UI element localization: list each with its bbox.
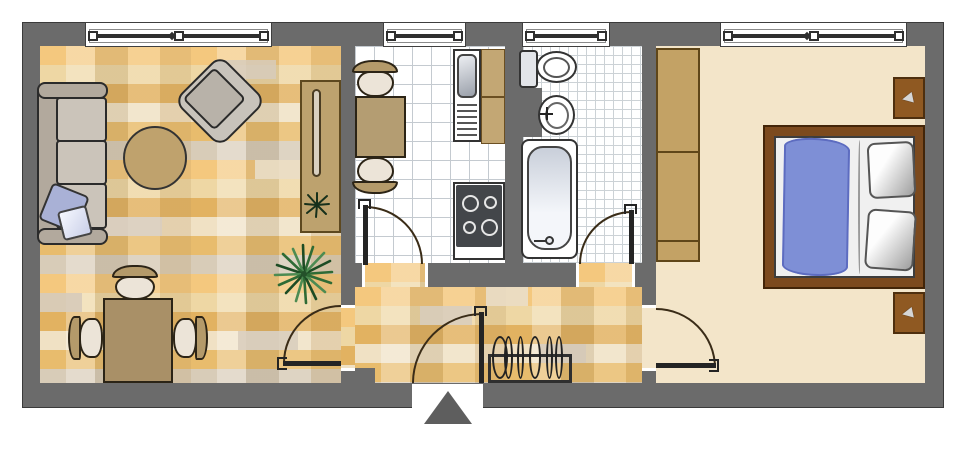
- window-end-post: [453, 31, 463, 41]
- window-end-post: [597, 31, 607, 41]
- window-end-post: [386, 31, 396, 41]
- kitchen-door-leaf: [363, 205, 368, 265]
- living-room-window: [85, 22, 272, 47]
- window-rail: [531, 34, 601, 38]
- drainboard-line: [457, 134, 477, 136]
- sideboard-shelf-slot: [312, 89, 321, 177]
- bed-pillow: [867, 141, 917, 199]
- nightstand-handle-icon: ▶: [901, 90, 914, 106]
- toilet-bowl-inner: [543, 57, 570, 78]
- door-jamb: [341, 368, 355, 371]
- stove-burner: [463, 221, 476, 234]
- drainboard-line: [457, 116, 477, 118]
- sofa-cushion: [56, 140, 107, 185]
- window-end-post: [894, 31, 904, 41]
- bathtub-drain-line: [534, 240, 546, 242]
- bathtub-drain: [545, 236, 554, 245]
- drainboard-line: [457, 110, 477, 112]
- wardrobe: [656, 48, 700, 262]
- door-jamb: [632, 263, 635, 287]
- coat-hanger: [504, 336, 513, 379]
- bedroom-window: [720, 22, 907, 47]
- sink-basin: [457, 54, 477, 98]
- bathroom-window: [522, 22, 610, 47]
- coat-hanger: [546, 336, 553, 379]
- window-end-post: [525, 31, 535, 41]
- floor-plank-patch: [40, 293, 82, 312]
- coat-hanger: [529, 336, 541, 379]
- door-jamb: [425, 263, 428, 287]
- window-end-post: [723, 31, 733, 41]
- kitchen-chair: [357, 157, 394, 183]
- door-jamb: [576, 263, 579, 287]
- stove-cooktop: [456, 185, 502, 247]
- nightstand-handle-icon: ▶: [901, 305, 914, 321]
- drainboard-line: [457, 122, 477, 124]
- drainboard-line: [457, 128, 477, 130]
- kitchen-chair: [357, 71, 394, 97]
- wardrobe-divider: [656, 151, 700, 153]
- large-plant-icon: [272, 242, 336, 306]
- bathtub-inner: [527, 146, 572, 250]
- door-jamb: [341, 305, 355, 308]
- nightstand: ▶: [893, 292, 925, 334]
- drainboard-line: [457, 104, 477, 106]
- bathroom-door-hinge: [624, 204, 637, 214]
- toilet-cistern: [519, 50, 538, 88]
- dining-chair: [115, 276, 155, 300]
- small-plant-icon: [303, 191, 331, 219]
- sofa-cushion: [56, 97, 107, 142]
- dining-chair: [79, 318, 103, 358]
- round-rug: [123, 126, 187, 190]
- bathroom-doorway-gap: [579, 263, 632, 287]
- entrance-door-leaf: [479, 312, 484, 383]
- entrance-arrow-icon: [424, 391, 472, 424]
- nightstand: ▶: [893, 77, 925, 119]
- bed-blanket: [782, 137, 850, 276]
- entrance-door-hinge: [474, 306, 487, 316]
- bedroom-door-hinge: [709, 359, 719, 372]
- bedroom-door-leaf: [656, 363, 716, 368]
- sheet-fold-line: [858, 140, 861, 274]
- stove-burner: [481, 219, 498, 236]
- stove-burner: [484, 196, 497, 209]
- coat-hanger: [555, 336, 563, 379]
- faucet-cross: [546, 107, 548, 120]
- dining-table: [103, 298, 173, 383]
- stove-burner: [462, 195, 479, 212]
- washbasin-inner: [545, 102, 569, 129]
- kitchen-doorway-gap: [365, 263, 425, 287]
- floor-plan: ▶ ▶: [0, 0, 960, 449]
- wardrobe-divider: [656, 240, 700, 242]
- bedroom-doorway-gap: [642, 308, 656, 368]
- door-jamb: [642, 368, 656, 371]
- bathroom-door-leaf: [629, 210, 634, 264]
- living-door-hinge: [277, 357, 287, 370]
- window-rail: [392, 34, 457, 38]
- floor-plank-patch: [104, 217, 162, 236]
- dining-chair: [173, 318, 197, 358]
- bed-pillow: [864, 208, 917, 271]
- window-end-post: [259, 31, 269, 41]
- living-door-leaf: [283, 361, 341, 366]
- window-end-post: [88, 31, 98, 41]
- coat-hanger: [517, 336, 524, 379]
- door-jamb: [362, 263, 365, 287]
- kitchen-door-hinge: [358, 199, 371, 209]
- kitchen-table: [355, 96, 406, 158]
- plumbing-duct-wall: [505, 88, 542, 137]
- door-jamb: [642, 305, 656, 308]
- counter-divider: [481, 96, 505, 98]
- kitchen-window: [383, 22, 466, 47]
- floor-plank-patch: [486, 287, 528, 306]
- living-doorway-gap: [341, 308, 355, 368]
